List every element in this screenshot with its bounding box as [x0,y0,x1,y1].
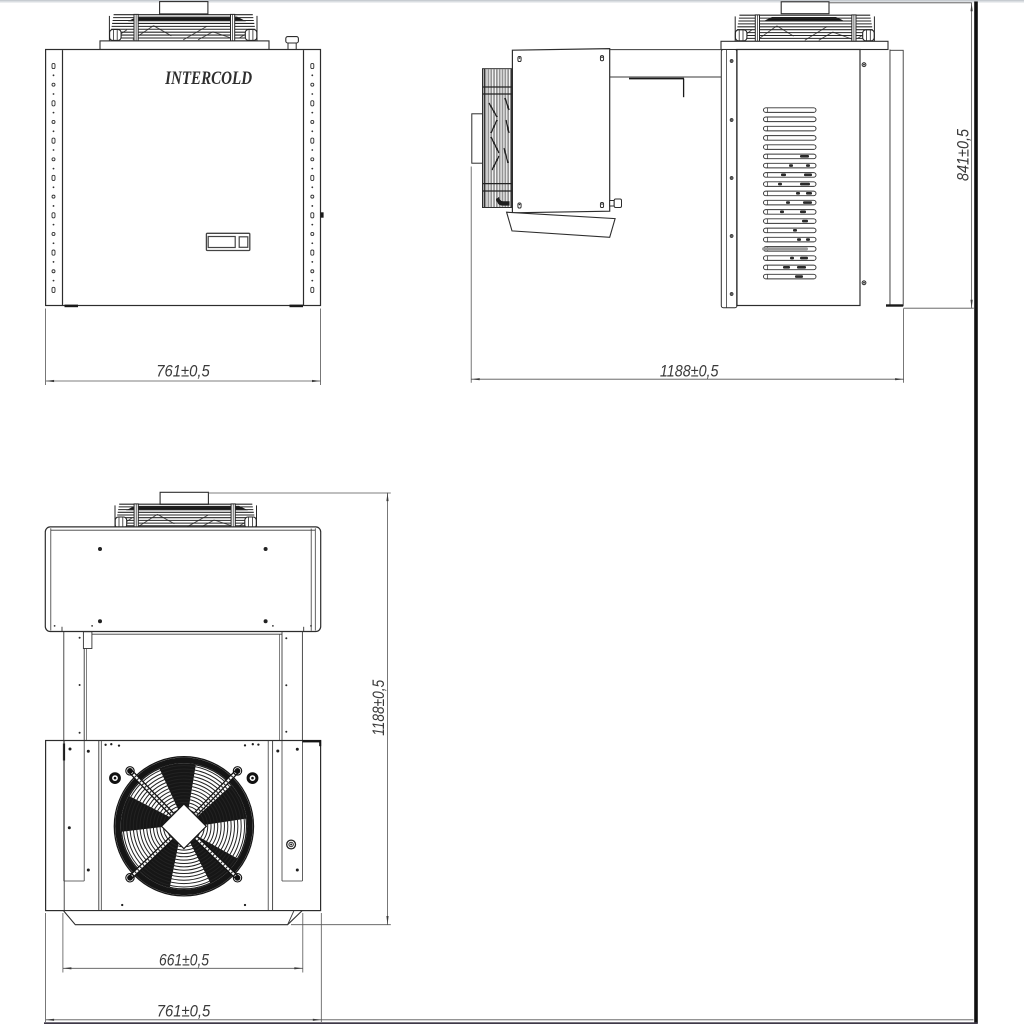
svg-text:661±0,5: 661±0,5 [159,951,209,970]
svg-text:1188±0,5: 1188±0,5 [660,362,719,381]
svg-text:INTERCOLD: INTERCOLD [164,69,252,89]
svg-text:761±0,5: 761±0,5 [156,362,210,381]
svg-text:841±0,5: 841±0,5 [953,129,972,181]
svg-text:1188±0,5: 1188±0,5 [369,679,388,735]
svg-text:761±0,5: 761±0,5 [157,1002,211,1021]
